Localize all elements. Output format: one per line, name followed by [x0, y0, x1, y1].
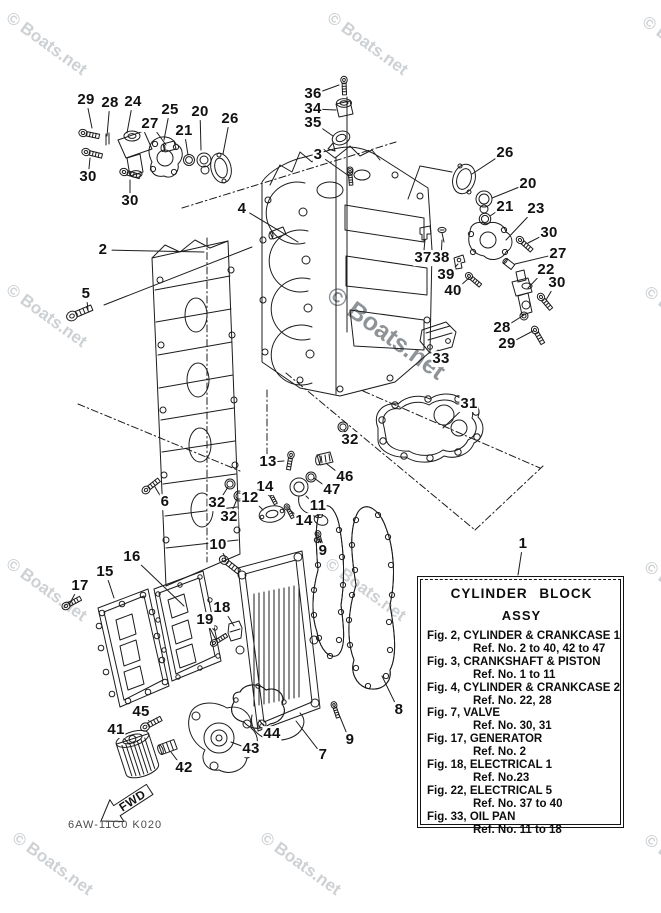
info-box-ref-line: Ref. No. 22, 28	[427, 695, 616, 708]
part-callout-40: 40	[443, 283, 462, 299]
part-flange-gasket-12	[258, 503, 287, 524]
part-callout-26: 26	[220, 111, 239, 127]
part-callout-4: 4	[237, 201, 248, 217]
part-callout-45: 45	[131, 704, 150, 720]
callout-leader-line	[127, 110, 131, 133]
callout-leader-line	[223, 127, 228, 154]
part-water-pump	[189, 703, 258, 772]
part-cooler-assembly	[236, 551, 320, 740]
part-bolt-13	[285, 451, 295, 470]
part-callout-28: 28	[492, 320, 511, 336]
info-box-fig-line: Fig. 18, ELECTRICAL 1	[427, 759, 616, 772]
callout-leader-line	[515, 331, 533, 340]
info-box-fig-line: Fig. 3, CRANKSHAFT & PISTON	[427, 656, 616, 669]
part-callout-32: 32	[340, 432, 359, 448]
part-bolt-30-a	[81, 147, 103, 159]
info-box-ref-line: Ref. No. 11 to 18	[427, 824, 616, 837]
part-callout-43: 43	[241, 741, 260, 757]
part-fitting-housing-24	[106, 131, 152, 177]
part-callout-3: 3	[313, 147, 324, 163]
info-box-title: CYLINDER BLOCK	[427, 586, 616, 601]
part-cover-plate	[96, 589, 169, 707]
info-box-fig-line: Fig. 7, VALVE	[427, 707, 616, 720]
part-callout-27: 27	[548, 246, 567, 262]
part-callout-23: 23	[526, 201, 545, 217]
part-callout-39: 39	[436, 267, 455, 283]
part-callout-8: 8	[394, 702, 405, 718]
part-callout-33: 33	[431, 351, 450, 367]
part-callout-30: 30	[539, 225, 558, 241]
part-callout-1: 1	[518, 536, 529, 552]
part-callout-14: 14	[294, 513, 313, 529]
info-box-fig-line: Fig. 22, ELECTRICAL 5	[427, 785, 616, 798]
callout-leader-line	[108, 580, 114, 598]
part-callout-19: 19	[195, 612, 214, 628]
part-cylinder-block	[260, 146, 432, 396]
part-plug-46	[316, 452, 333, 465]
part-callout-32: 32	[219, 509, 238, 525]
part-callout-12: 12	[240, 490, 259, 506]
callout-leader-line	[296, 721, 317, 749]
part-callout-26: 26	[495, 145, 514, 161]
part-callout-44: 44	[262, 726, 281, 742]
part-oil-pan-gasket	[346, 507, 394, 689]
part-callout-41: 41	[106, 722, 125, 738]
construction-line	[420, 166, 452, 172]
info-box-fig-line: Fig. 17, GENERATOR	[427, 733, 616, 746]
part-callout-5: 5	[81, 286, 92, 302]
part-bolt-19	[209, 632, 228, 647]
callout-leader-line	[227, 615, 234, 626]
part-callout-31: 31	[459, 396, 478, 412]
info-box-subtitle: ASSY	[427, 608, 616, 623]
part-callout-21: 21	[174, 123, 193, 139]
part-callout-30: 30	[547, 275, 566, 291]
part-bolt-30-r2	[536, 292, 554, 311]
info-box-inner: CYLINDER BLOCK ASSY Fig. 2, CYLINDER & C…	[420, 579, 621, 825]
part-clip-37	[420, 226, 431, 240]
callout-leader-line	[200, 120, 201, 150]
info-box-fig-line: Fig. 2, CYLINDER & CRANKCASE 1	[427, 630, 616, 643]
callout-leader-line	[322, 85, 339, 91]
part-callout-9: 9	[345, 732, 356, 748]
info-box-ref-line: Ref. No. 30, 31	[427, 720, 616, 733]
part-callout-29: 29	[497, 336, 516, 352]
part-crankcase-half	[152, 240, 240, 586]
part-bolt-30-r1	[515, 235, 534, 253]
part-callout-20: 20	[518, 176, 537, 192]
callout-leader-line	[472, 157, 497, 174]
part-bolt-29-right	[530, 325, 546, 345]
part-callout-13: 13	[258, 454, 277, 470]
callout-leader-line	[88, 108, 92, 128]
part-callout-6: 6	[160, 494, 171, 510]
part-gasket-26-right	[449, 161, 479, 196]
part-bolt-3	[347, 168, 354, 185]
callout-leader-line	[107, 111, 109, 136]
part-callout-15: 15	[95, 564, 114, 580]
part-callout-17: 17	[70, 578, 89, 594]
callout-leader-line	[518, 552, 522, 575]
part-callout-7: 7	[318, 747, 329, 763]
part-callout-35: 35	[303, 115, 322, 131]
part-callout-28: 28	[100, 95, 119, 111]
callout-leader-line	[338, 712, 346, 733]
part-fitting-22	[512, 270, 532, 315]
callout-leader-line	[277, 461, 284, 462]
part-callout-38: 38	[431, 250, 450, 266]
info-box-fig-line: Fig. 33, OIL PAN	[427, 811, 616, 824]
parts-diagram-page: © Boats.net© Boats.net© Boats.net© Boats…	[0, 0, 661, 913]
part-callout-47: 47	[322, 482, 341, 498]
info-box-ref-line: Ref. No. 1 to 11	[427, 669, 616, 682]
part-bolt-29-left	[78, 129, 100, 140]
info-box-rows: Fig. 2, CYLINDER & CRANKCASE 1Ref. No. 2…	[427, 630, 616, 837]
part-bolt-10	[218, 554, 242, 575]
callout-leader-line	[322, 109, 336, 110]
info-box-fig-line: Fig. 4, CYLINDER & CRANKCASE 2	[427, 682, 616, 695]
part-nut-28-right	[520, 312, 528, 320]
part-fitting-42	[157, 740, 178, 756]
callout-leader-line	[250, 213, 298, 242]
part-gasket-26-left	[208, 151, 235, 185]
callout-leader-line	[492, 187, 520, 198]
part-side-gasket	[311, 506, 345, 659]
part-callout-30: 30	[120, 193, 139, 209]
part-callout-2: 2	[98, 242, 109, 258]
part-oring-32b	[225, 479, 235, 489]
part-fitting-27-right	[502, 258, 515, 270]
part-bolt-5	[65, 303, 93, 322]
part-thermostat-cover-23	[468, 222, 512, 259]
part-callout-16: 16	[122, 549, 141, 565]
info-box-ref-line: Ref. No. 37 to 40	[427, 798, 616, 811]
part-callout-37: 37	[413, 250, 432, 266]
info-box-ref-line: Ref. No. 2 to 40, 42 to 47	[427, 643, 616, 656]
part-callout-42: 42	[174, 760, 193, 776]
part-callout-30: 30	[78, 169, 97, 185]
part-callout-24: 24	[123, 94, 142, 110]
part-callout-29: 29	[76, 92, 95, 108]
part-callout-20: 20	[190, 104, 209, 120]
part-oring-47	[306, 472, 316, 482]
part-thermostat-20	[197, 153, 211, 174]
info-box-ref-line: Ref. No. 2	[427, 746, 616, 759]
part-thermostat-20-right	[476, 191, 492, 213]
part-callout-25: 25	[160, 102, 179, 118]
part-callout-27: 27	[140, 116, 159, 132]
part-callout-9: 9	[318, 543, 329, 559]
callout-leader-line	[185, 139, 188, 155]
part-callout-21: 21	[495, 199, 514, 215]
callout-leader-line	[325, 159, 349, 176]
part-bolt-17	[61, 595, 83, 611]
part-oring-21	[184, 155, 195, 166]
part-callout-10: 10	[208, 537, 227, 553]
part-mount-18	[228, 621, 242, 641]
callout-leader-line	[546, 290, 552, 300]
info-box: CYLINDER BLOCK ASSY Fig. 2, CYLINDER & C…	[417, 576, 624, 828]
info-box-ref-line: Ref. No.23	[427, 772, 616, 785]
drawing-code: 6AW-11C0 K020	[68, 819, 162, 831]
part-callout-18: 18	[212, 600, 231, 616]
callout-leader-line	[443, 409, 462, 428]
part-mount-bracket	[420, 322, 456, 353]
fwd-arrow-label: FWD	[116, 787, 148, 814]
callout-leader-line	[139, 562, 184, 606]
